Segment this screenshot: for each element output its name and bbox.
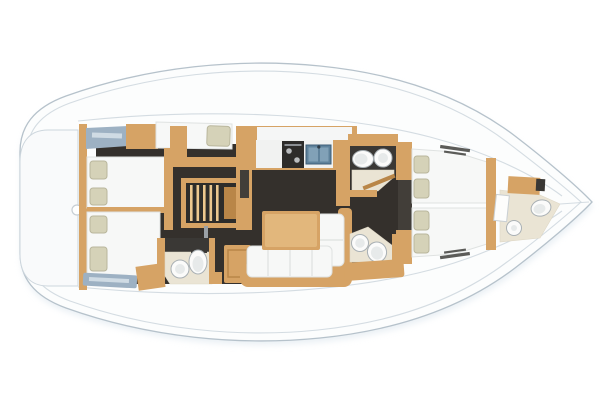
cabin-wall [396, 230, 412, 264]
stove-rail [285, 144, 302, 146]
locker-slat [92, 132, 122, 138]
wardrobe-block [126, 124, 158, 149]
stair-tread [203, 185, 206, 221]
corridor-trim [340, 190, 377, 197]
forward-bulkhead [486, 158, 496, 250]
port-forward-head [343, 227, 404, 281]
head-wall [209, 238, 215, 284]
locker-door [494, 194, 510, 221]
berth-pillow [414, 234, 429, 253]
pullman-pillow [207, 126, 231, 147]
berth-pillow [414, 156, 429, 173]
sink-bowl [309, 148, 319, 162]
toilet-seat [355, 154, 368, 165]
shower-drain-center [511, 225, 517, 231]
stair-tread [216, 185, 219, 221]
swim-platform [20, 130, 78, 286]
berth-pillow [90, 188, 107, 205]
partition-band [173, 157, 240, 167]
burner [286, 148, 292, 154]
head-wall [157, 238, 165, 284]
head-cabinet [348, 134, 398, 148]
berth-pillow [414, 211, 429, 230]
dining-table-top [265, 214, 317, 247]
aft-bulkhead [79, 124, 87, 290]
bow-vanity-sink [536, 179, 546, 191]
berth-pillow [90, 216, 107, 233]
sink-basin [378, 153, 388, 163]
sink-basin [355, 238, 365, 248]
stairs-landing [224, 187, 236, 219]
stair-tread [210, 185, 213, 221]
yacht-floorplan-image [0, 0, 600, 400]
stair-tread [197, 185, 200, 221]
burner [294, 157, 300, 163]
stair-tread [190, 185, 193, 221]
sink-bowl [320, 148, 329, 162]
bow-vanity [508, 176, 541, 195]
aft-head [157, 238, 215, 284]
floorplan-canvas [0, 0, 600, 400]
berth-pillow [90, 247, 107, 271]
berth-pillow [90, 161, 107, 179]
sink-basin [175, 264, 185, 274]
faucet [317, 145, 320, 148]
berth-pillow [414, 179, 429, 198]
toilet-seat [193, 256, 204, 272]
cabin-wall [396, 142, 412, 180]
backsplash [257, 127, 352, 140]
